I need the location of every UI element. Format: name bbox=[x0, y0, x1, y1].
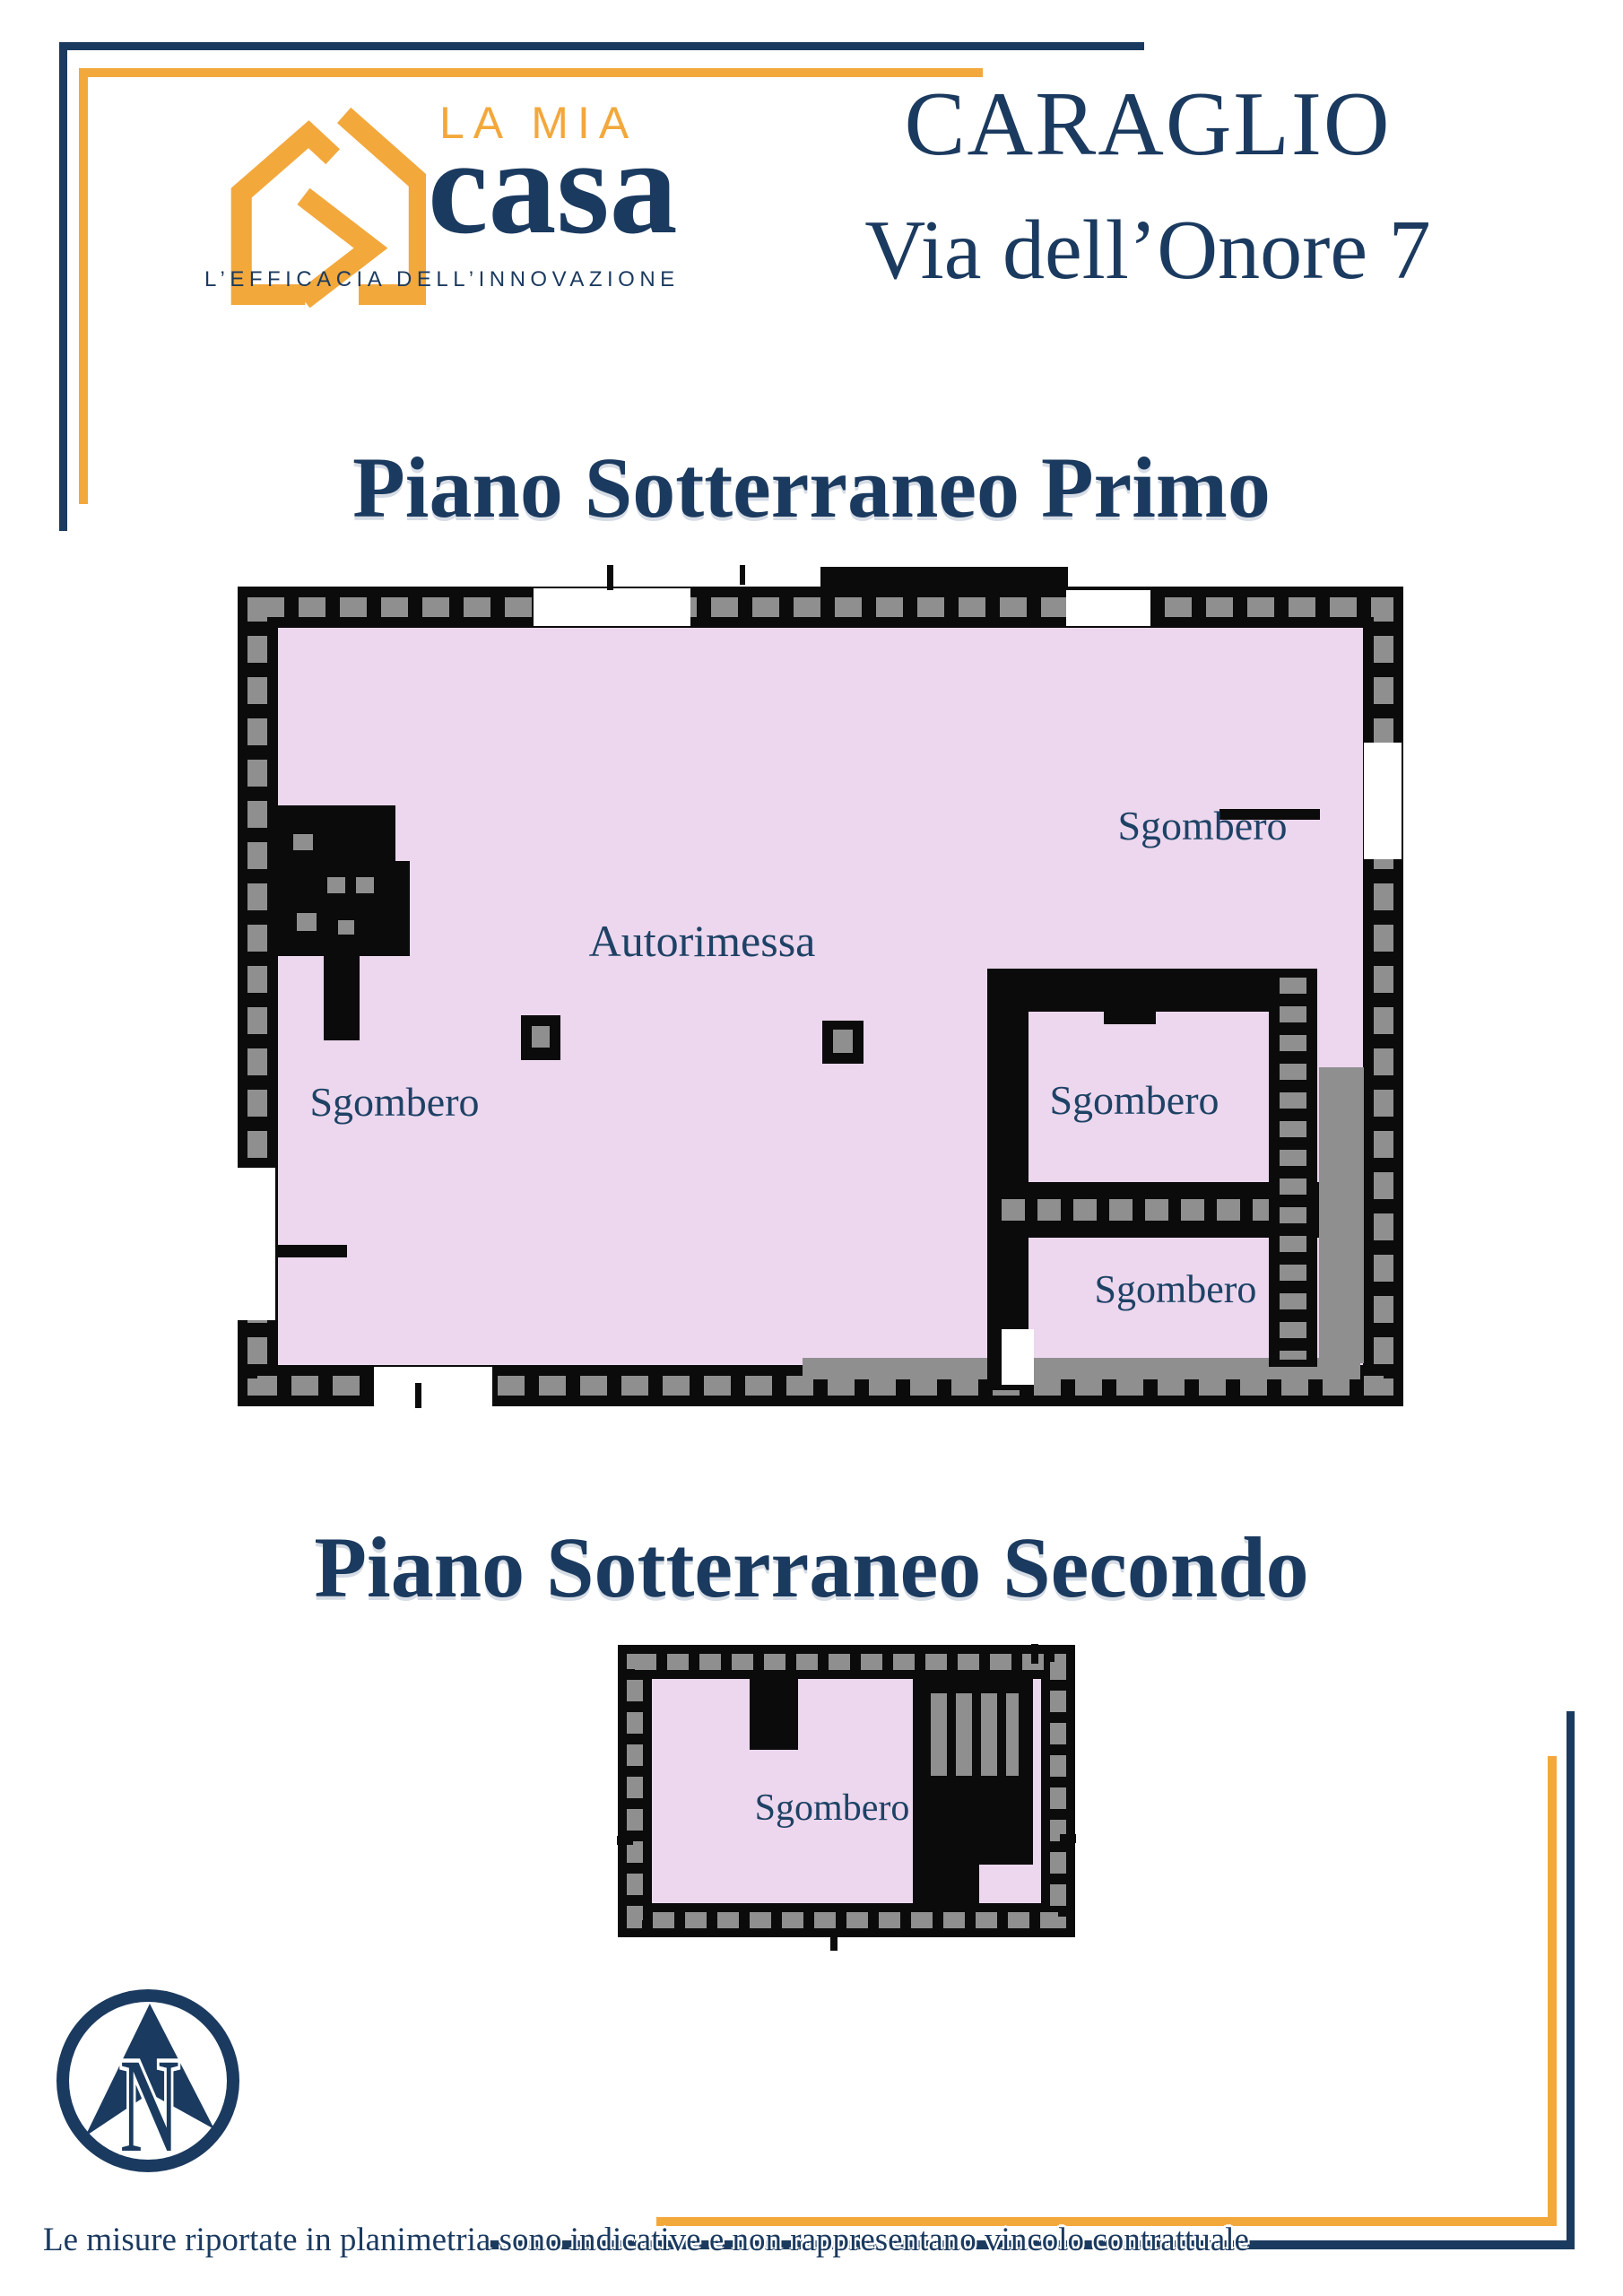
floor-plan-1: Autorimessa Sgombero Sgombero Sgombero S… bbox=[238, 565, 1403, 1408]
room-label-sgombero-left: Sgombero bbox=[309, 1079, 479, 1125]
room-label-sgombero-botright: Sgombero bbox=[1095, 1267, 1257, 1311]
room-label-sgombero-midright: Sgombero bbox=[1049, 1077, 1219, 1123]
north-letter: N bbox=[119, 2031, 179, 2180]
room-label-autorimessa: Autorimessa bbox=[589, 916, 816, 966]
property-header: CARAGLIO Via dell’Onore 7 bbox=[834, 79, 1462, 292]
footer-disclaimer: Le misure riportate in planimetria sono … bbox=[43, 2221, 1249, 2259]
brand-name-main: casa bbox=[428, 126, 678, 248]
property-city: CARAGLIO bbox=[834, 79, 1462, 170]
floor-plan-2: Sgombero bbox=[617, 1644, 1076, 1953]
north-compass: N bbox=[49, 1980, 247, 2183]
planimetry-page: LA MIA casa L’EFFICACIA DELL’INNOVAZIONE… bbox=[0, 0, 1623, 2296]
corner-line-bottom-orange-v bbox=[1548, 1756, 1557, 2226]
floor1-title: Piano Sotterraneo Primo bbox=[0, 438, 1623, 537]
property-address: Via dell’Onore 7 bbox=[834, 208, 1462, 292]
room-label-sgombero-floor2: Sgombero bbox=[755, 1787, 910, 1829]
corner-line-top-navy-h bbox=[59, 42, 1144, 50]
corner-line-top-orange-h bbox=[79, 68, 983, 77]
corner-line-bottom-navy-v bbox=[1567, 1711, 1575, 2249]
floor2-title: Piano Sotterraneo Secondo bbox=[0, 1518, 1623, 1617]
room-label-sgombero-topright: Sgombero bbox=[1117, 803, 1287, 848]
brand-tagline: L’EFFICACIA DELL’INNOVAZIONE bbox=[204, 267, 680, 292]
